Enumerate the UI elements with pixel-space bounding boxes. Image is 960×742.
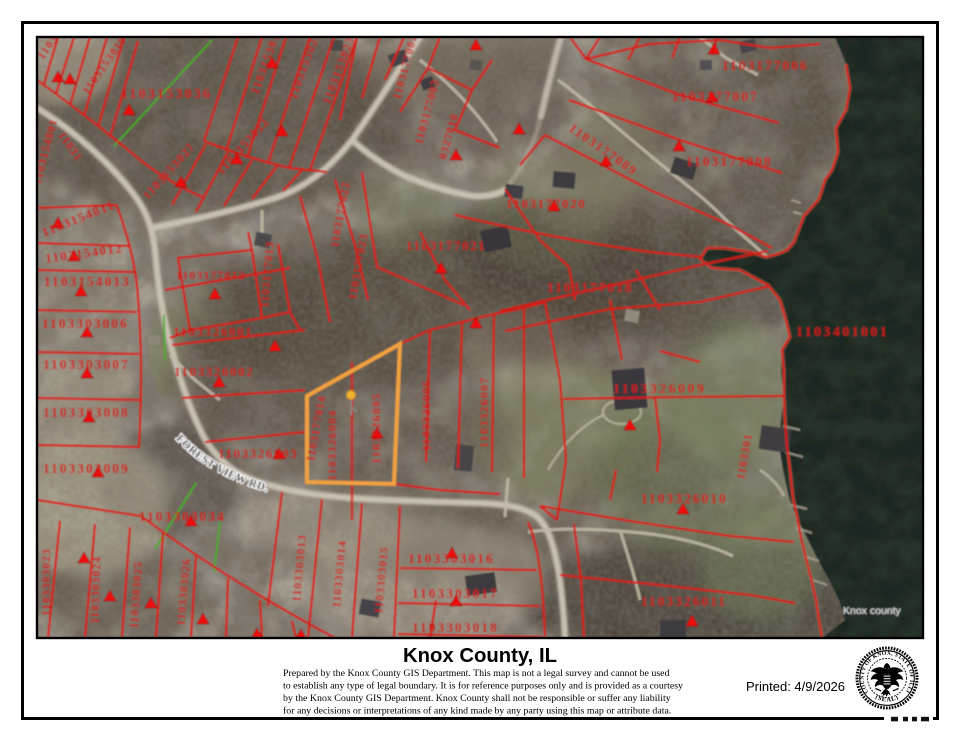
svg-text:1103326009: 1103326009 bbox=[613, 382, 706, 397]
svg-text:1103326001: 1103326001 bbox=[173, 324, 253, 339]
svg-text:1103303006: 1103303006 bbox=[42, 316, 129, 331]
svg-text:1103326011: 1103326011 bbox=[641, 594, 727, 609]
svg-text:1103326005: 1103326005 bbox=[369, 393, 383, 464]
svg-text:1103303016: 1103303016 bbox=[408, 551, 495, 566]
svg-text:1103177006: 1103177006 bbox=[722, 58, 809, 73]
svg-text:1103177007: 1103177007 bbox=[672, 89, 759, 104]
svg-text:1103303007: 1103303007 bbox=[43, 357, 130, 372]
svg-text:1103303017: 1103303017 bbox=[412, 586, 499, 601]
svg-text:1103177021: 1103177021 bbox=[406, 238, 486, 253]
svg-text:1103177008: 1103177008 bbox=[686, 154, 773, 169]
svg-text:1103303024: 1103303024 bbox=[89, 556, 103, 624]
svg-text:by the Knox County GIS Departm: by the Knox County GIS Department. Knox … bbox=[283, 693, 671, 704]
svg-text:1103177018: 1103177018 bbox=[547, 280, 634, 295]
svg-text:1103177012: 1103177012 bbox=[176, 268, 245, 282]
svg-text:1103326004: 1103326004 bbox=[325, 410, 339, 481]
svg-text:1103401001: 1103401001 bbox=[796, 325, 889, 340]
svg-text:1103326003: 1103326003 bbox=[218, 446, 298, 461]
svg-text:1103326007: 1103326007 bbox=[477, 377, 491, 448]
svg-text:1103177020: 1103177020 bbox=[506, 196, 586, 211]
svg-text:Prepared by the Knox County GI: Prepared by the Knox County GIS Departme… bbox=[283, 668, 670, 679]
svg-text:1103303009: 1103303009 bbox=[43, 461, 130, 476]
svg-text:Knox County, IL: Knox County, IL bbox=[403, 645, 557, 667]
svg-text:1103303023: 1103303023 bbox=[41, 548, 53, 616]
svg-text:for any decisions or interpret: for any decisions or interpretations of … bbox=[283, 706, 671, 717]
svg-text:to establish any type of legal: to establish any type of legal boundary.… bbox=[283, 681, 683, 692]
svg-text:1103303034: 1103303034 bbox=[139, 509, 226, 524]
svg-text:1103303018: 1103303018 bbox=[412, 620, 499, 635]
svg-text:1103303008: 1103303008 bbox=[43, 405, 130, 420]
svg-text:1103326002: 1103326002 bbox=[174, 364, 254, 379]
svg-text:Knox county: Knox county bbox=[843, 605, 902, 617]
svg-text:1103154013: 1103154013 bbox=[44, 274, 131, 289]
svg-text:1103326006: 1103326006 bbox=[419, 380, 433, 451]
svg-text:1103153036: 1103153036 bbox=[121, 87, 212, 102]
svg-text:Printed: 4/9/2026: Printed: 4/9/2026 bbox=[746, 679, 845, 694]
svg-text:1103326010: 1103326010 bbox=[641, 491, 728, 506]
